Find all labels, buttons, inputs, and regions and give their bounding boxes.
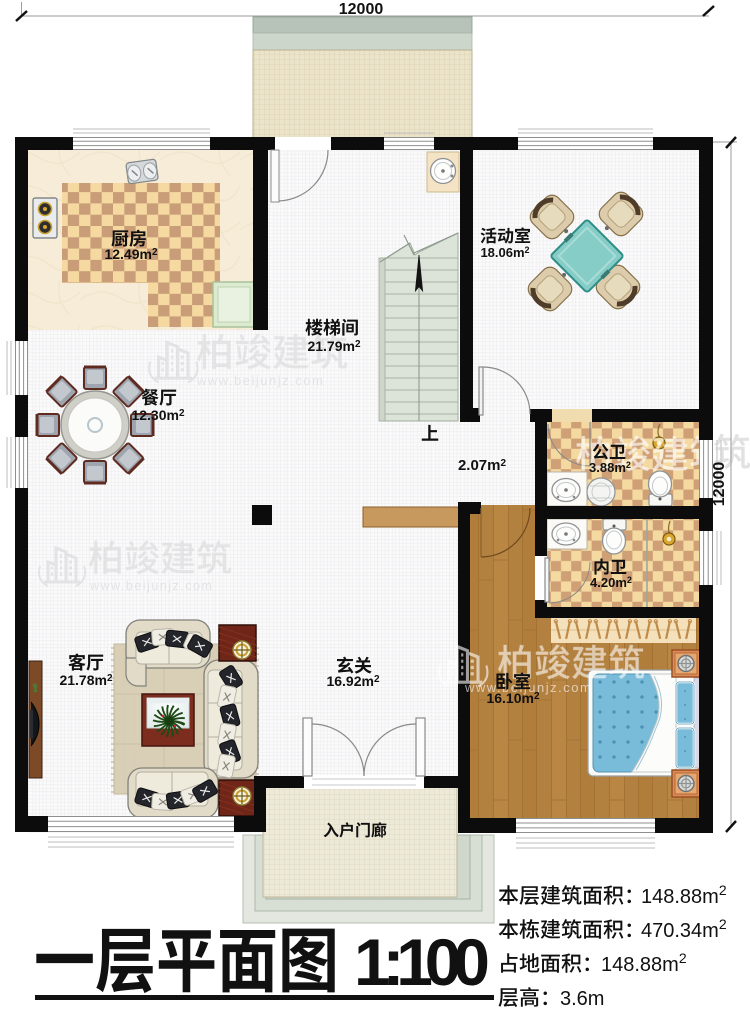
svg-text:148.88m2: 148.88m2 xyxy=(601,950,687,976)
svg-text:12000: 12000 xyxy=(711,462,728,507)
svg-text:1:100: 1:100 xyxy=(354,925,490,999)
svg-text:18.06m2: 18.06m2 xyxy=(480,245,529,260)
svg-text:21.78m2: 21.78m2 xyxy=(59,672,112,688)
svg-text:3.88m2: 3.88m2 xyxy=(589,460,631,475)
svg-text:12.49m2: 12.49m2 xyxy=(104,246,157,262)
svg-text:21.79m2: 21.79m2 xyxy=(307,338,360,354)
svg-text:12.30m2: 12.30m2 xyxy=(131,407,184,423)
svg-text:www.beijunjz.com: www.beijunjz.com xyxy=(89,579,213,593)
svg-text:470.34m2: 470.34m2 xyxy=(641,916,727,942)
svg-text:148.88m2: 148.88m2 xyxy=(641,882,727,908)
svg-text:16.92m2: 16.92m2 xyxy=(326,673,379,689)
svg-text:www.beijunjz.com: www.beijunjz.com xyxy=(196,373,324,388)
svg-text:3.6m: 3.6m xyxy=(560,988,604,1010)
svg-text:12000: 12000 xyxy=(339,1,384,18)
svg-text:16.10m2: 16.10m2 xyxy=(486,690,539,706)
svg-text:4.20m2: 4.20m2 xyxy=(590,575,632,590)
svg-text:2.07m2: 2.07m2 xyxy=(458,457,507,474)
